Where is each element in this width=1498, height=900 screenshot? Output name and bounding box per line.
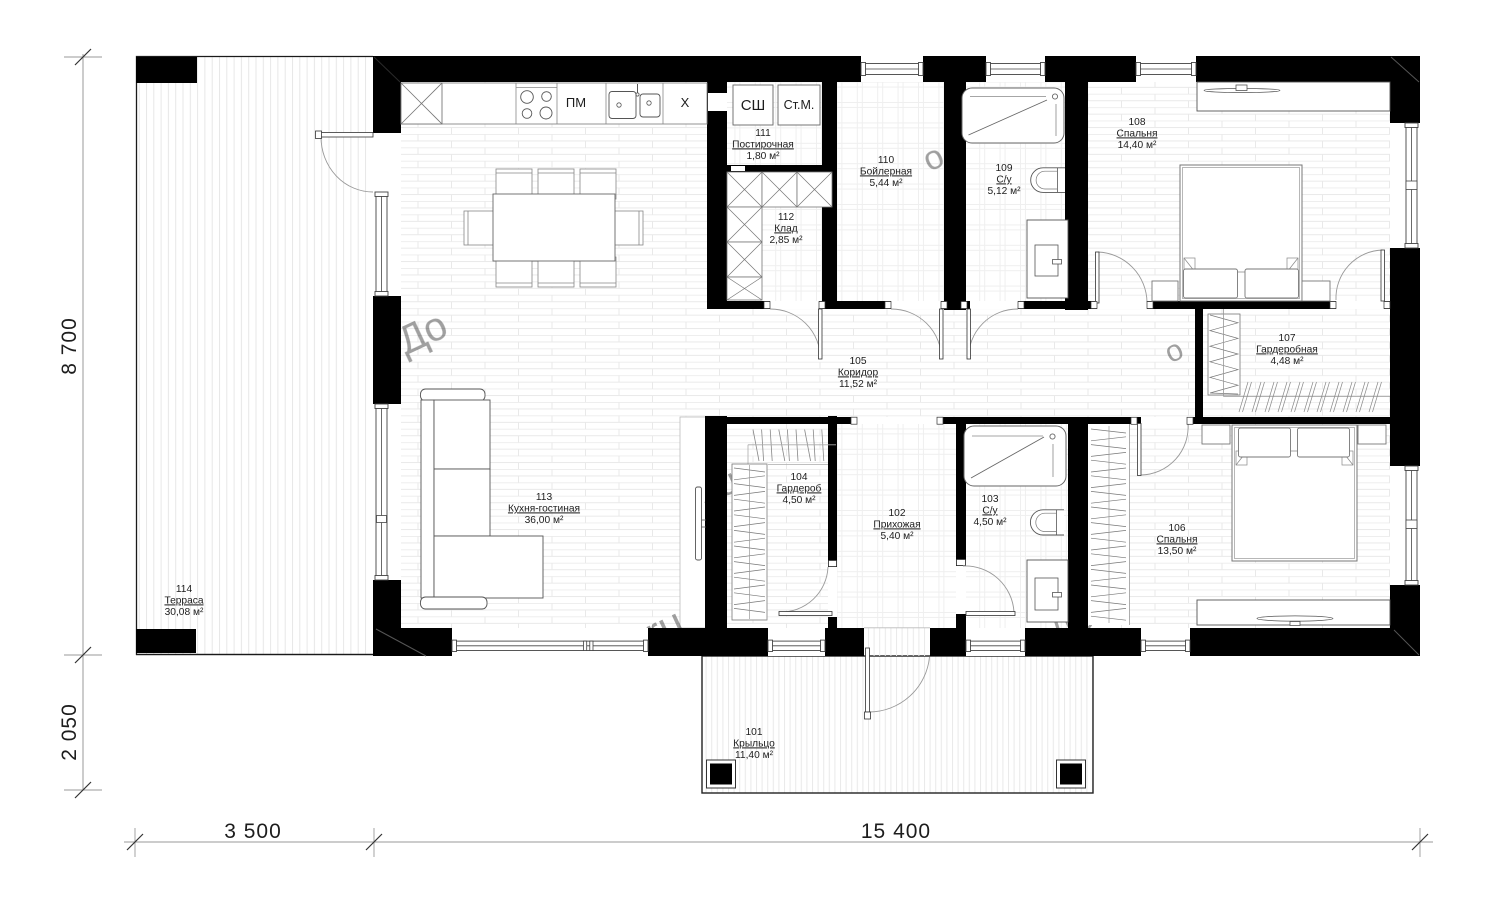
svg-text:Клад: Клад: [774, 223, 798, 234]
svg-text:Коридор: Коридор: [838, 367, 879, 378]
svg-text:X: X: [681, 95, 690, 110]
svg-text:5,40 м²: 5,40 м²: [880, 531, 914, 542]
svg-text:3 500: 3 500: [224, 820, 282, 843]
svg-text:Терраса: Терраса: [164, 595, 203, 606]
svg-text:Прихожая: Прихожая: [873, 519, 920, 530]
svg-text:ПМ: ПМ: [566, 95, 586, 110]
svg-text:113: 113: [536, 492, 553, 503]
svg-text:С/у: С/у: [982, 505, 998, 516]
svg-text:111: 111: [755, 128, 771, 139]
svg-text:114: 114: [176, 584, 193, 595]
svg-text:4,50 м²: 4,50 м²: [782, 495, 816, 506]
svg-text:2 050: 2 050: [58, 703, 81, 761]
svg-text:4,50 м²: 4,50 м²: [973, 517, 1007, 528]
svg-text:109: 109: [996, 163, 1013, 174]
svg-text:5,44 м²: 5,44 м²: [869, 178, 903, 189]
svg-text:1,80 м²: 1,80 м²: [746, 151, 780, 162]
svg-text:5,12 м²: 5,12 м²: [987, 186, 1021, 197]
svg-text:15 400: 15 400: [861, 820, 931, 843]
svg-text:11,40 м²: 11,40 м²: [735, 750, 774, 761]
svg-text:8 700: 8 700: [58, 317, 81, 375]
svg-text:Крыльцо: Крыльцо: [733, 738, 775, 749]
svg-text:Бойлерная: Бойлерная: [860, 166, 912, 177]
svg-text:104: 104: [791, 472, 808, 483]
svg-text:102: 102: [889, 508, 906, 519]
svg-text:110: 110: [878, 155, 895, 166]
svg-text:13,50 м²: 13,50 м²: [1158, 546, 1197, 557]
svg-text:Ст.М.: Ст.М.: [784, 98, 815, 112]
svg-text:105: 105: [850, 356, 867, 367]
svg-text:14,40 м²: 14,40 м²: [1118, 140, 1157, 151]
svg-text:Спальня: Спальня: [1117, 128, 1158, 139]
svg-text:С/у: С/у: [996, 174, 1012, 185]
svg-text:112: 112: [778, 212, 795, 223]
svg-text:Кухня-гостиная: Кухня-гостиная: [508, 503, 580, 514]
svg-text:СШ: СШ: [741, 97, 766, 114]
svg-text:103: 103: [982, 494, 999, 505]
svg-text:Спальня: Спальня: [1157, 534, 1198, 545]
svg-text:106: 106: [1169, 523, 1186, 534]
svg-text:4,48 м²: 4,48 м²: [1270, 356, 1304, 367]
svg-text:108: 108: [1129, 117, 1146, 128]
svg-text:Гардеробная: Гардеробная: [1256, 343, 1318, 355]
svg-text:2,85 м²: 2,85 м²: [769, 235, 803, 246]
svg-text:Постирочная: Постирочная: [732, 139, 794, 150]
svg-text:101: 101: [746, 727, 763, 738]
svg-text:11,52 м²: 11,52 м²: [839, 379, 878, 390]
svg-text:107: 107: [1279, 333, 1296, 344]
svg-text:Гардероб: Гардероб: [777, 482, 822, 494]
svg-text:36,00 м²: 36,00 м²: [525, 515, 564, 526]
svg-text:30,08 м²: 30,08 м²: [165, 607, 204, 618]
